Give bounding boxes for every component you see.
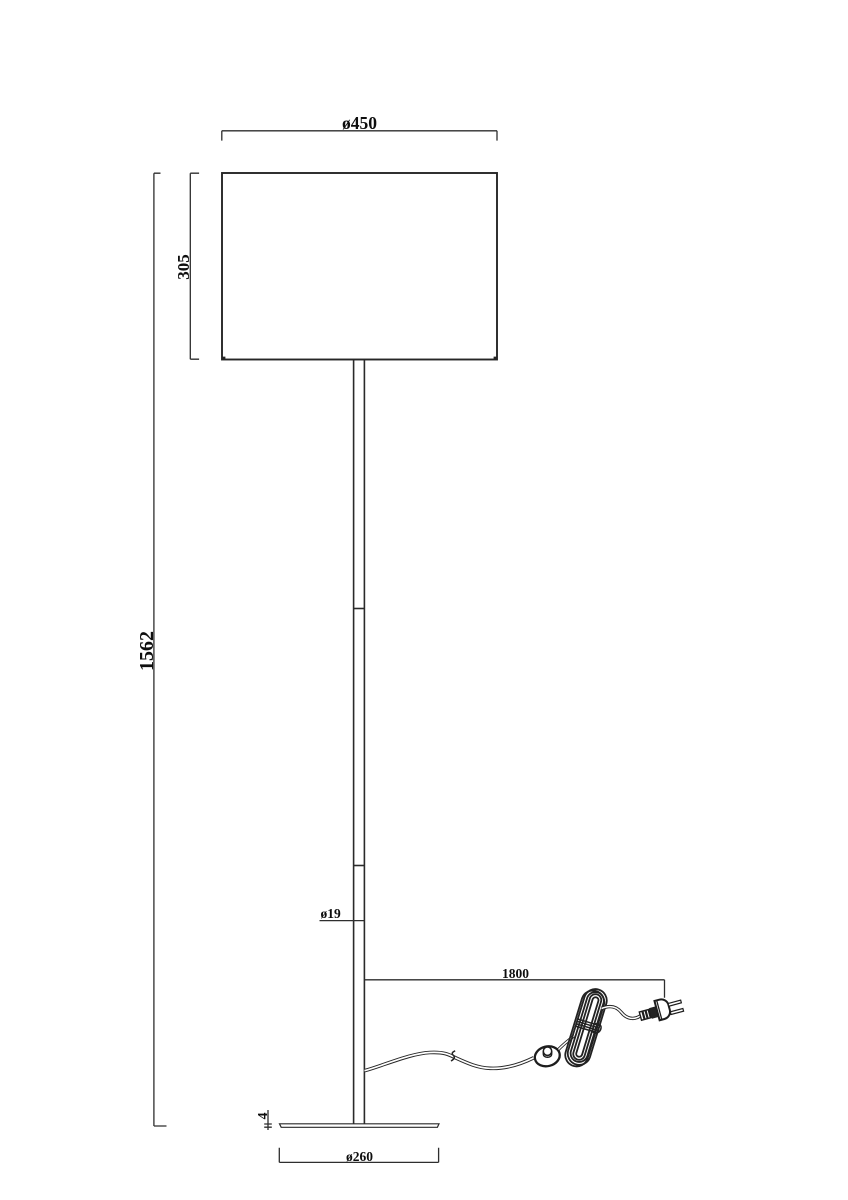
svg-text:ø19: ø19	[321, 906, 342, 921]
svg-text:1562: 1562	[136, 631, 158, 671]
svg-text:4: 4	[256, 1113, 271, 1120]
svg-text:1800: 1800	[502, 966, 529, 981]
svg-text:ø450: ø450	[342, 113, 377, 133]
svg-text:ø260: ø260	[346, 1149, 373, 1164]
svg-text:305: 305	[174, 254, 193, 280]
